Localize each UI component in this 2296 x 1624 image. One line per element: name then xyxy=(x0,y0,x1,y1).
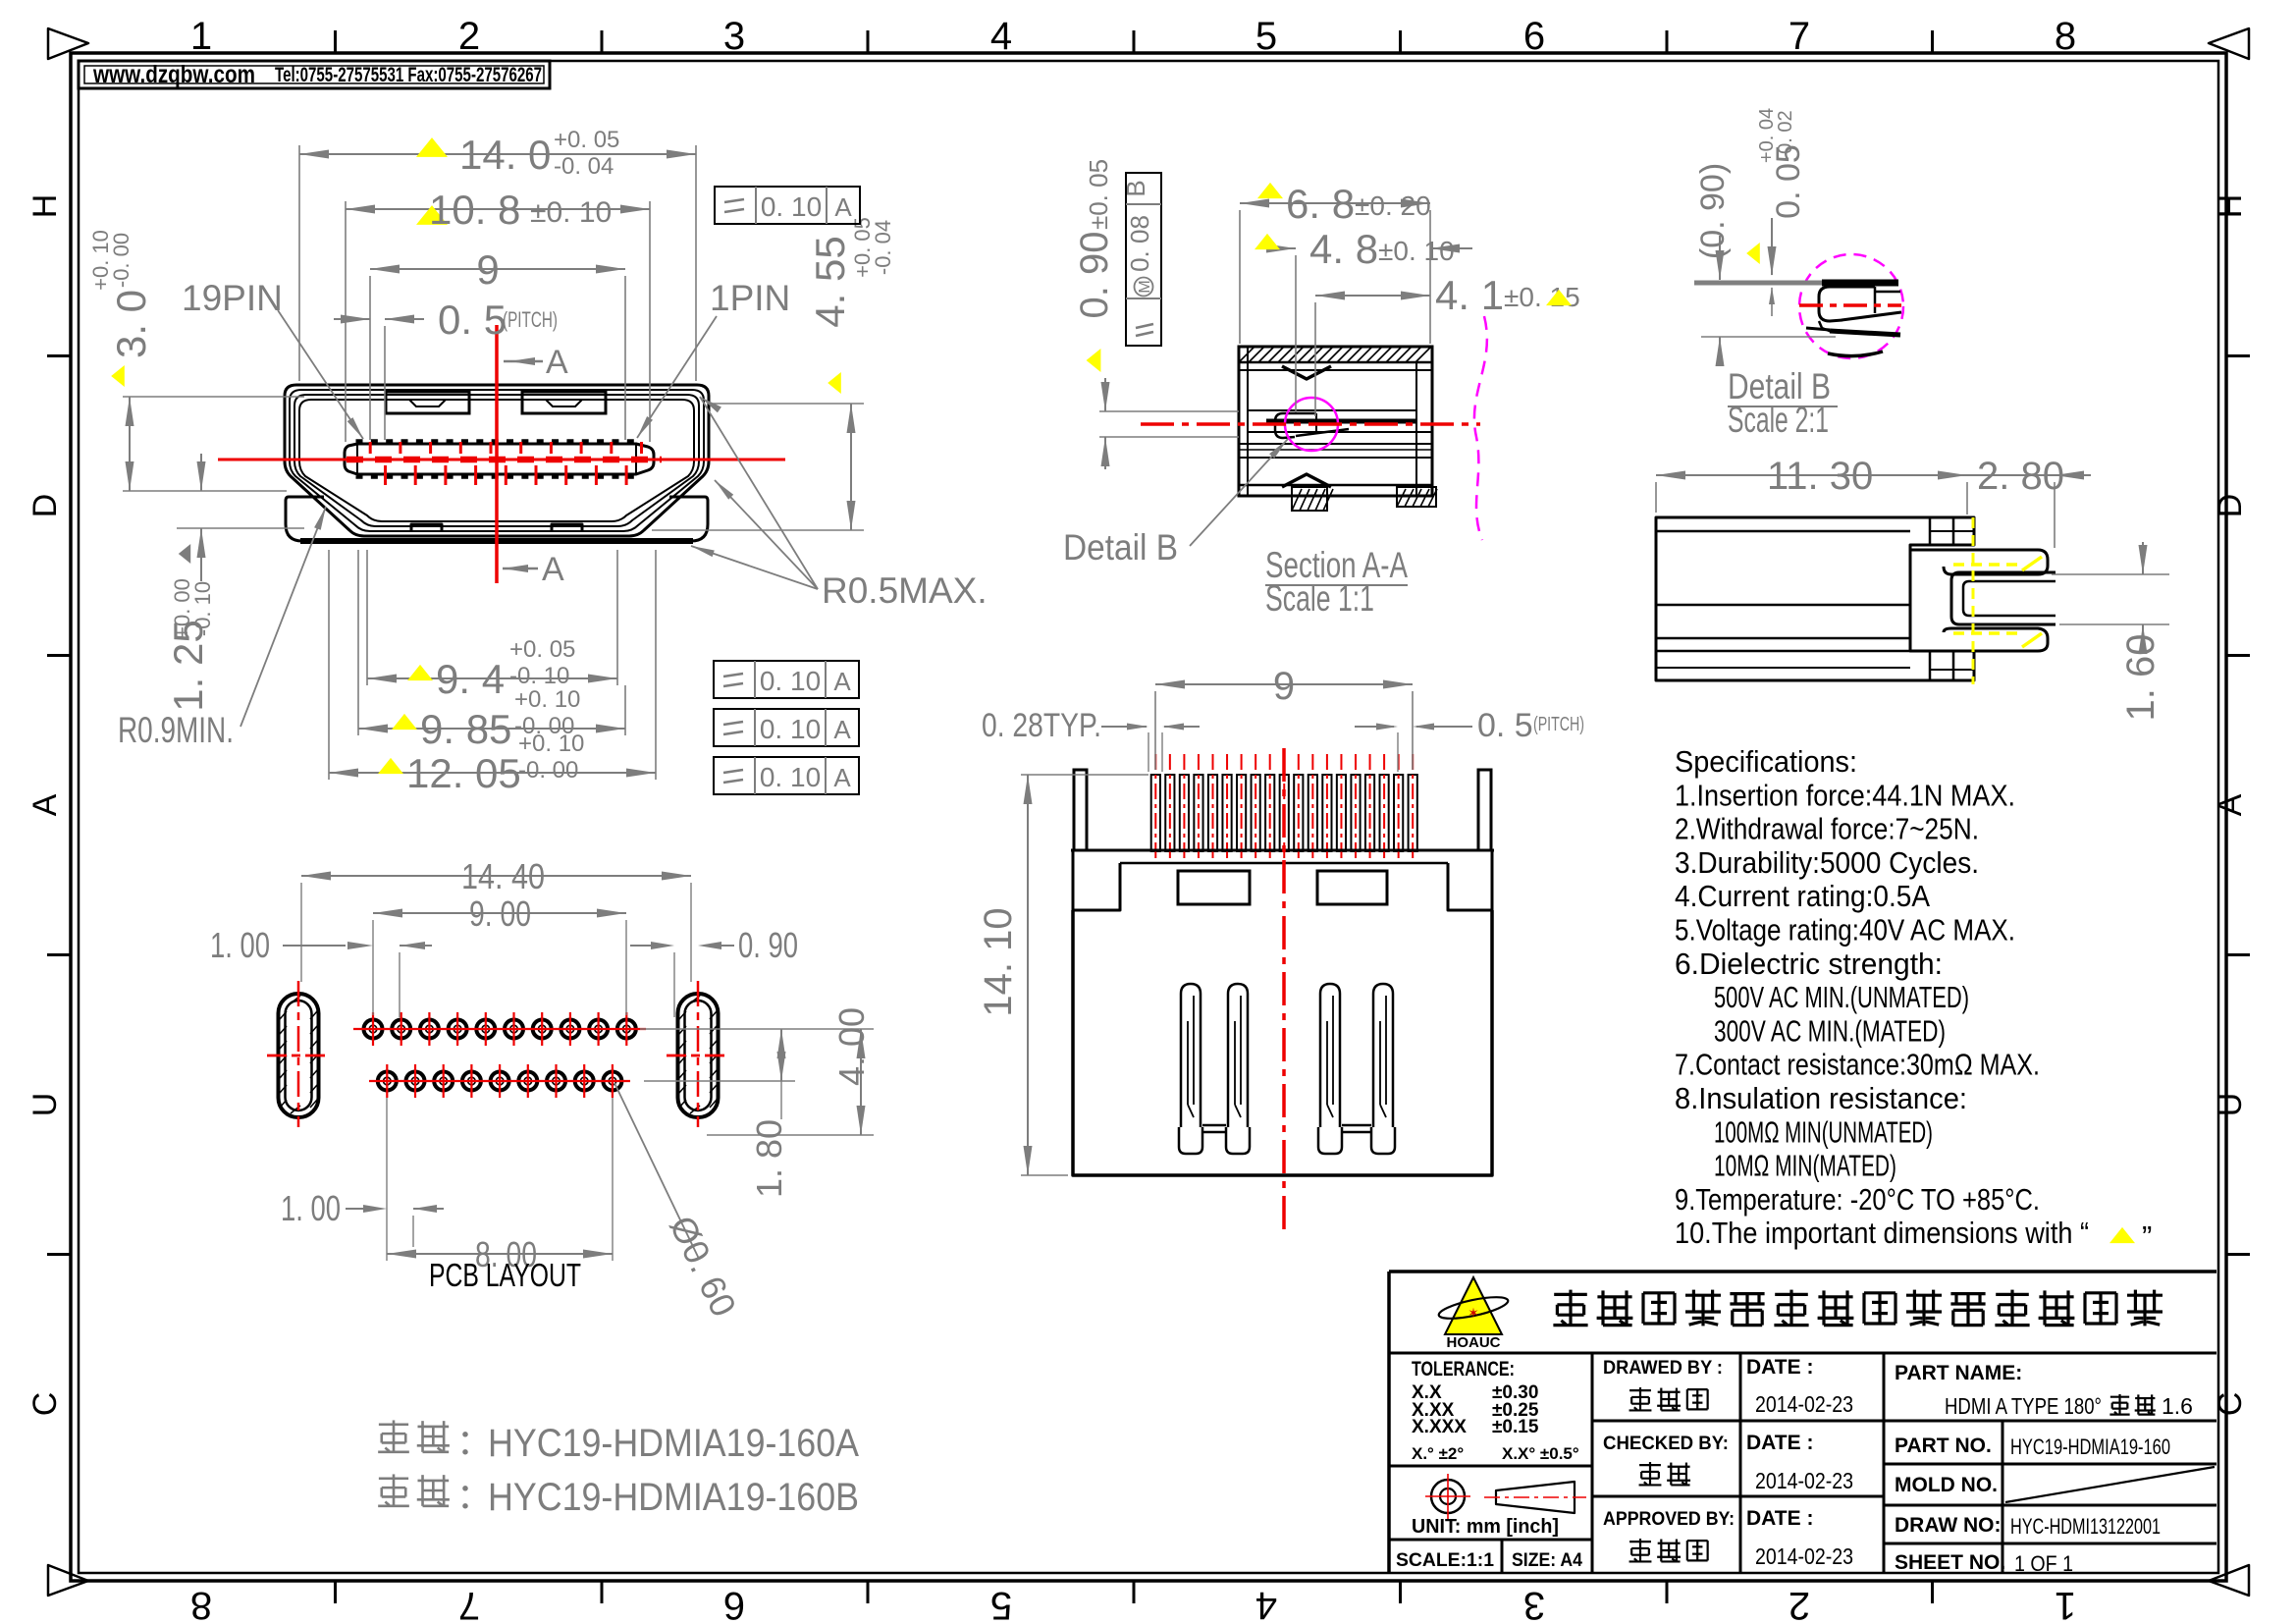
svg-text:6: 6 xyxy=(1523,15,1545,58)
svg-text:DRAWED BY :: DRAWED BY : xyxy=(1603,1357,1723,1379)
svg-text:2.Withdrawal force:7~25N.: 2.Withdrawal force:7~25N. xyxy=(1675,812,1979,846)
svg-text:-0. 04: -0. 04 xyxy=(554,153,614,180)
svg-text:U: U xyxy=(2212,1093,2249,1117)
svg-text:4. 8: 4. 8 xyxy=(1309,226,1378,272)
svg-text:-0. 10: -0. 10 xyxy=(509,663,569,689)
svg-text:1: 1 xyxy=(190,15,212,58)
svg-text:M: M xyxy=(1137,280,1153,293)
svg-text:D: D xyxy=(2212,494,2249,518)
svg-text:9. 85: 9. 85 xyxy=(420,706,511,752)
svg-text:9.Temperature: -20°C TO +85°C.: 9.Temperature: -20°C TO +85°C. xyxy=(1675,1182,2040,1217)
svg-text:+0. 05: +0. 05 xyxy=(554,127,619,153)
svg-text:11. 30: 11. 30 xyxy=(1767,455,1873,498)
svg-text:Scale 2:1: Scale 2:1 xyxy=(1728,400,1829,440)
svg-text:10MΩ MIN(MATED): 10MΩ MIN(MATED) xyxy=(1714,1149,1896,1183)
svg-text:9: 9 xyxy=(1273,665,1295,708)
svg-text:0. 10: 0. 10 xyxy=(760,714,821,744)
svg-text:DRAW NO:: DRAW NO: xyxy=(1895,1514,2002,1537)
svg-text:3: 3 xyxy=(723,15,745,58)
svg-text:2. 80: 2. 80 xyxy=(1977,455,2064,498)
svg-text:8: 8 xyxy=(190,1584,212,1624)
svg-text:H: H xyxy=(2212,194,2249,219)
svg-text:6. 8: 6. 8 xyxy=(1286,181,1355,227)
svg-text:：: ： xyxy=(456,1476,492,1516)
svg-text:14. 10: 14. 10 xyxy=(977,907,1020,1016)
svg-text:±0. 10: ±0. 10 xyxy=(1378,236,1455,266)
svg-text:2014-02-23: 2014-02-23 xyxy=(1755,1543,1853,1569)
svg-text:2: 2 xyxy=(1789,1584,1810,1624)
svg-text:5.Voltage rating:40V AC MAX.: 5.Voltage rating:40V AC MAX. xyxy=(1675,913,2015,947)
svg-text:PART NAME:: PART NAME: xyxy=(1895,1362,2022,1384)
svg-text:A: A xyxy=(2212,793,2249,816)
svg-text:1. 00: 1. 00 xyxy=(210,925,270,965)
svg-text:14. 40: 14. 40 xyxy=(461,856,545,896)
svg-text:4.Current rating:0.5A: 4.Current rating:0.5A xyxy=(1675,879,1930,913)
svg-text:±0.15: ±0.15 xyxy=(1492,1417,1539,1437)
svg-text:10. 8: 10. 8 xyxy=(429,187,520,233)
svg-text:PART NO.: PART NO. xyxy=(1895,1435,1992,1457)
svg-text:SIZE: A4: SIZE: A4 xyxy=(1512,1550,1582,1571)
svg-text:Detail B: Detail B xyxy=(1063,527,1178,568)
svg-text:(0. 90): (0. 90) xyxy=(1694,163,1732,259)
svg-text:±0. 20: ±0. 20 xyxy=(1355,190,1431,221)
svg-text:0. 5: 0. 5 xyxy=(438,297,507,343)
svg-text:H: H xyxy=(27,194,64,219)
svg-text:±0. 05: ±0. 05 xyxy=(1084,159,1113,230)
svg-text:UNIT: mm [inch]: UNIT: mm [inch] xyxy=(1412,1516,1559,1538)
svg-text:HOAUC: HOAUC xyxy=(1447,1334,1501,1351)
svg-text:4: 4 xyxy=(1255,1584,1277,1624)
svg-text:HYC19-HDMIA19-160: HYC19-HDMIA19-160 xyxy=(2010,1435,2170,1459)
svg-text:3.Durability:5000 Cycles.: 3.Durability:5000 Cycles. xyxy=(1675,845,1979,880)
svg-text:0. 28TYP.: 0. 28TYP. xyxy=(982,707,1101,744)
svg-text:1.6: 1.6 xyxy=(2162,1393,2193,1419)
svg-text:19PIN: 19PIN xyxy=(182,278,283,318)
svg-text:14. 0: 14. 0 xyxy=(459,132,551,178)
svg-text:C: C xyxy=(2212,1392,2249,1417)
svg-text:2014-02-23: 2014-02-23 xyxy=(1755,1391,1853,1417)
svg-text:0. 10: 0. 10 xyxy=(760,762,821,792)
svg-text:1: 1 xyxy=(2055,1584,2076,1624)
svg-text:5: 5 xyxy=(990,1584,1012,1624)
svg-text:±0. 15: ±0. 15 xyxy=(1504,282,1580,312)
svg-text:：: ： xyxy=(456,1422,492,1462)
svg-text:4. 1: 4. 1 xyxy=(1435,272,1504,318)
svg-text:U: U xyxy=(27,1093,64,1117)
svg-text:1 OF 1: 1 OF 1 xyxy=(2014,1551,2073,1576)
svg-text:(PITCH): (PITCH) xyxy=(503,307,558,332)
svg-text:1. 80: 1. 80 xyxy=(749,1119,789,1198)
svg-text:3. 0: 3. 0 xyxy=(108,290,154,358)
svg-text:100MΩ MIN(UNMATED): 100MΩ MIN(UNMATED) xyxy=(1714,1114,1933,1149)
svg-text:6.Dielectric strength:: 6.Dielectric strength: xyxy=(1675,947,1943,981)
svg-text:A: A xyxy=(546,344,568,381)
svg-text:B: B xyxy=(1121,180,1150,196)
svg-text:SCALE:1:1: SCALE:1:1 xyxy=(1396,1550,1494,1571)
svg-text:9. 00: 9. 00 xyxy=(469,893,531,934)
svg-text:4. 55: 4. 55 xyxy=(807,236,853,327)
svg-text:-0. 00: -0. 00 xyxy=(109,233,133,288)
svg-text:4: 4 xyxy=(990,15,1012,58)
svg-text:DATE :: DATE : xyxy=(1746,1507,1813,1530)
svg-text:10.The important dimensions wi: 10.The important dimensions with “ xyxy=(1675,1216,2089,1250)
svg-text:-0. 02: -0. 02 xyxy=(1775,110,1796,160)
svg-text:5: 5 xyxy=(1255,15,1277,58)
svg-text:1PIN: 1PIN xyxy=(710,278,790,318)
svg-text:+0. 10: +0. 10 xyxy=(514,686,580,713)
svg-text:8.Insulation resistance:: 8.Insulation resistance: xyxy=(1675,1081,1967,1115)
svg-text:A: A xyxy=(833,763,851,792)
svg-text:-0. 10: -0. 10 xyxy=(190,581,215,636)
svg-text:C: C xyxy=(27,1392,64,1417)
svg-text:7.Contact resistance:30mΩ MAX.: 7.Contact resistance:30mΩ MAX. xyxy=(1675,1048,2040,1082)
svg-text:www.dzqbw.com: www.dzqbw.com xyxy=(92,61,255,88)
svg-text:300V AC MIN.(MATED): 300V AC MIN.(MATED) xyxy=(1714,1013,1946,1048)
svg-text:6: 6 xyxy=(723,1584,745,1624)
svg-text:3: 3 xyxy=(1523,1584,1545,1624)
svg-text:PCB LAYOUT: PCB LAYOUT xyxy=(429,1257,581,1293)
svg-text:Scale 1:1: Scale 1:1 xyxy=(1265,578,1374,619)
svg-text:MOLD NO.: MOLD NO. xyxy=(1895,1474,1998,1496)
svg-text:A: A xyxy=(542,551,564,588)
svg-text:X.XXX: X.XXX xyxy=(1412,1417,1467,1437)
svg-text:500V AC MIN.(UNMATED): 500V AC MIN.(UNMATED) xyxy=(1714,980,1969,1014)
svg-text:HYC19-HDMIA19-160B: HYC19-HDMIA19-160B xyxy=(488,1476,859,1519)
svg-text:+0. 10: +0. 10 xyxy=(518,731,584,757)
svg-text:HYC-HDMI13122001: HYC-HDMI13122001 xyxy=(2010,1514,2161,1539)
svg-text:D: D xyxy=(27,494,64,518)
svg-text:DATE :: DATE : xyxy=(1746,1356,1813,1379)
svg-text:0. 10: 0. 10 xyxy=(761,191,822,222)
svg-text:2014-02-23: 2014-02-23 xyxy=(1755,1468,1853,1493)
svg-text:”: ” xyxy=(2142,1219,2152,1254)
svg-text:4. 00: 4. 00 xyxy=(831,1007,872,1086)
svg-text:R0.9MIN.: R0.9MIN. xyxy=(118,710,234,750)
svg-text:R0.5MAX.: R0.5MAX. xyxy=(822,570,988,611)
svg-text:±0. 10: ±0. 10 xyxy=(530,196,612,229)
svg-text:CHECKED BY:: CHECKED BY: xyxy=(1603,1433,1729,1454)
svg-text:9. 4: 9. 4 xyxy=(436,656,505,702)
svg-text:HDMI A TYPE 180°: HDMI A TYPE 180° xyxy=(1945,1393,2102,1419)
svg-text:0. 08: 0. 08 xyxy=(1125,215,1154,272)
svg-text:1. 00: 1. 00 xyxy=(281,1188,341,1228)
svg-text:0. 10: 0. 10 xyxy=(760,666,821,696)
svg-text:A: A xyxy=(833,715,851,744)
svg-text:7: 7 xyxy=(1789,15,1810,58)
svg-text:A: A xyxy=(27,793,64,816)
svg-text:X.° ±2°: X.° ±2° xyxy=(1412,1444,1464,1463)
svg-text:12. 05: 12. 05 xyxy=(406,750,521,796)
svg-text:Tel:0755-27575531 Fax:0755-27: Tel:0755-27575531 Fax:0755-27576267 xyxy=(275,64,542,86)
svg-text:-0. 04: -0. 04 xyxy=(871,220,895,275)
svg-text:0. 5: 0. 5 xyxy=(1477,707,1533,744)
svg-text:8: 8 xyxy=(2055,15,2076,58)
svg-text:0. 90: 0. 90 xyxy=(738,925,798,965)
svg-text:-0. 00: -0. 00 xyxy=(518,757,578,784)
svg-text:7: 7 xyxy=(458,1584,480,1624)
svg-text:HYC19-HDMIA19-160A: HYC19-HDMIA19-160A xyxy=(488,1422,859,1465)
svg-text:(PITCH): (PITCH) xyxy=(1533,714,1584,735)
svg-text:1.Insertion force:44.1N MAX.: 1.Insertion force:44.1N MAX. xyxy=(1675,778,2015,812)
svg-text:A: A xyxy=(834,192,852,222)
svg-text:✶: ✶ xyxy=(1468,1305,1479,1321)
svg-text:X.X° ±0.5°: X.X° ±0.5° xyxy=(1502,1444,1579,1463)
svg-text:DATE :: DATE : xyxy=(1746,1432,1813,1454)
svg-text:0. 90: 0. 90 xyxy=(1073,232,1116,319)
svg-text:9: 9 xyxy=(476,246,499,293)
svg-text:APPROVED BY:: APPROVED BY: xyxy=(1603,1508,1735,1530)
svg-text:A: A xyxy=(833,667,851,696)
svg-text:+0. 05: +0. 05 xyxy=(509,636,575,663)
svg-text:TOLERANCE:: TOLERANCE: xyxy=(1412,1358,1515,1380)
svg-text:2: 2 xyxy=(458,15,480,58)
svg-text:SHEET NO.: SHEET NO. xyxy=(1895,1551,2005,1574)
svg-text:Specifications:: Specifications: xyxy=(1675,744,1857,779)
